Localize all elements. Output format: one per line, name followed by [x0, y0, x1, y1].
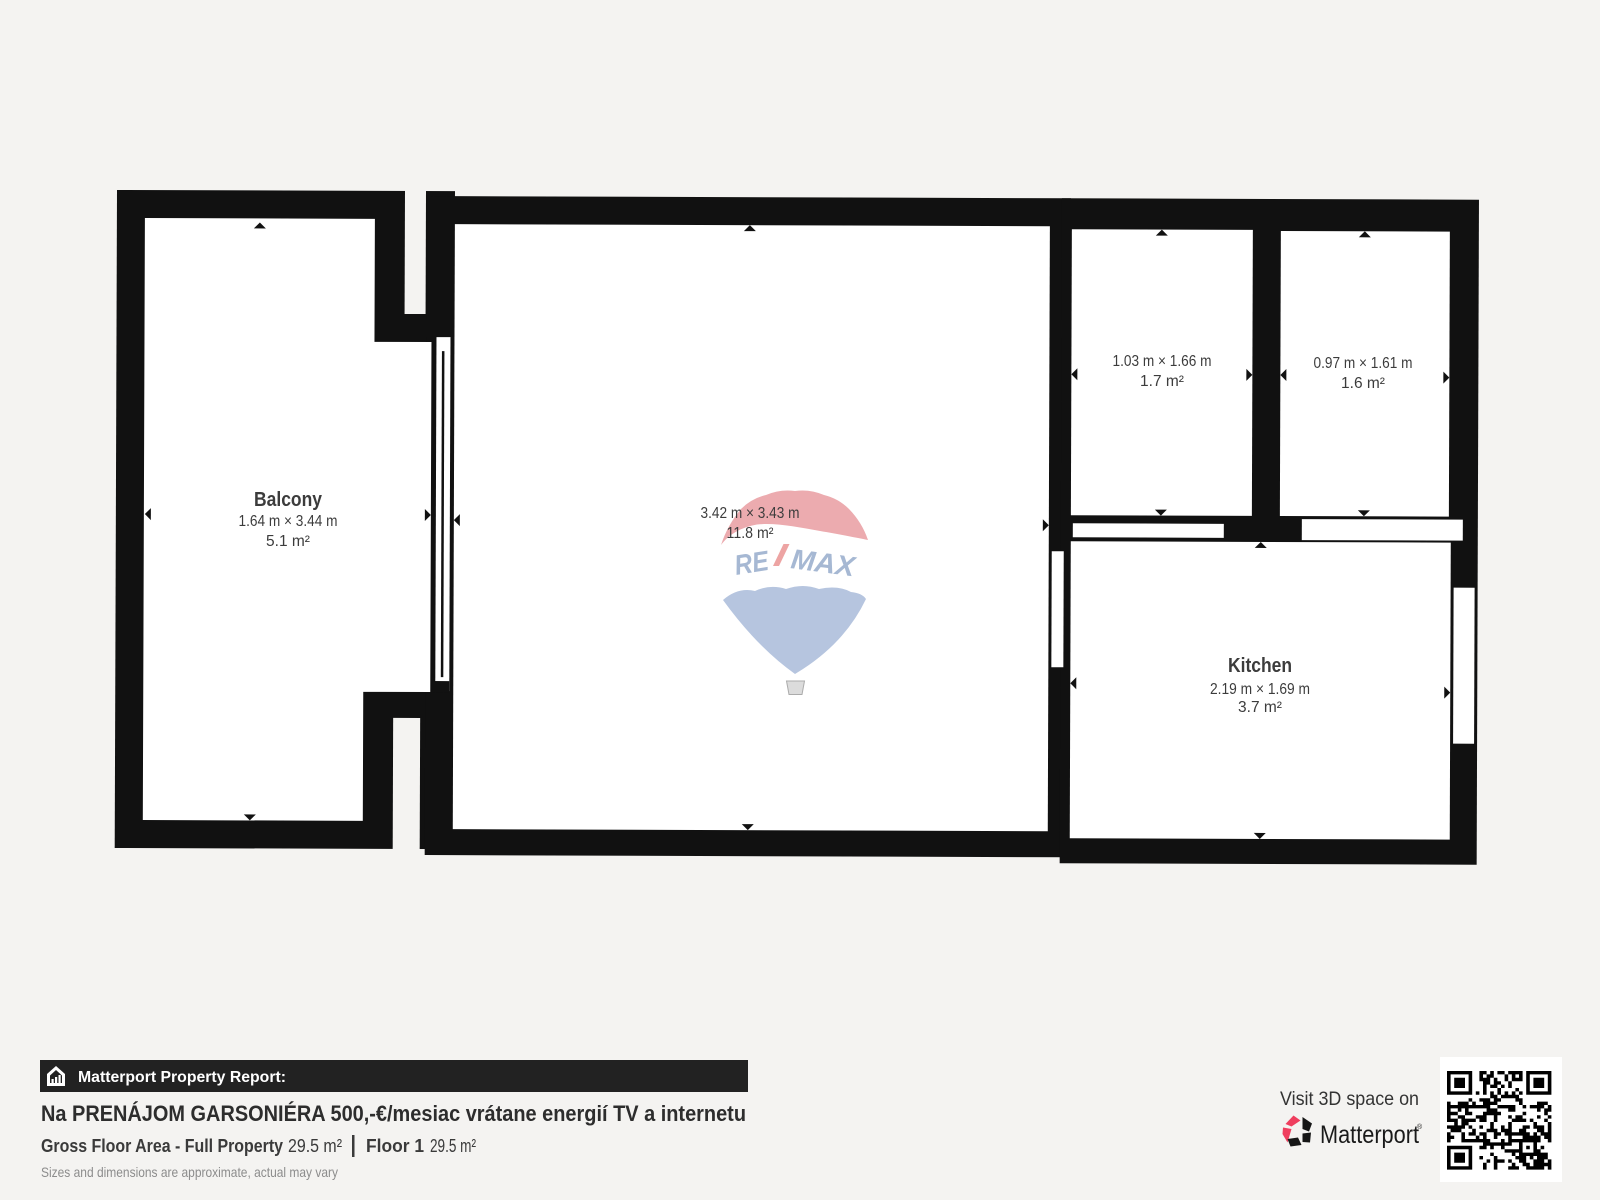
svg-text:RE: RE [732, 545, 772, 581]
svg-text:Kitchen: Kitchen [1228, 655, 1292, 677]
svg-text:Na PRENÁJOM GARSONIÉRA 500,-€/: Na PRENÁJOM GARSONIÉRA 500,-€/mesiac vrá… [41, 1101, 746, 1126]
svg-text:0.97 m × 1.61 m: 0.97 m × 1.61 m [1314, 355, 1413, 372]
svg-text:1.6 m²: 1.6 m² [1341, 375, 1385, 392]
svg-text:®: ® [1417, 1123, 1423, 1131]
svg-text:Floor 1: Floor 1 [366, 1135, 424, 1156]
svg-text:11.8 m²: 11.8 m² [727, 525, 774, 542]
svg-text:2.19 m × 1.69 m: 2.19 m × 1.69 m [1210, 681, 1310, 698]
svg-text:Balcony: Balcony [254, 489, 323, 511]
svg-text:Matterport: Matterport [1320, 1121, 1419, 1149]
svg-text:1.7 m²: 1.7 m² [1140, 373, 1184, 390]
svg-text:Gross Floor Area - Full Proper: Gross Floor Area - Full Property [41, 1135, 284, 1156]
svg-text:Matterport Property Report:: Matterport Property Report: [78, 1069, 286, 1086]
svg-text:1.64 m × 3.44 m: 1.64 m × 3.44 m [239, 513, 338, 530]
svg-text:5.1 m²: 5.1 m² [266, 533, 310, 550]
svg-text:3.42 m × 3.43 m: 3.42 m × 3.43 m [701, 505, 800, 522]
svg-text:29.5 m²: 29.5 m² [430, 1135, 476, 1156]
svg-text:29.5 m²: 29.5 m² [288, 1135, 342, 1156]
svg-text:1.03 m × 1.66 m: 1.03 m × 1.66 m [1113, 353, 1212, 370]
svg-text:Visit 3D space on: Visit 3D space on [1280, 1088, 1419, 1110]
svg-text:3.7 m²: 3.7 m² [1238, 699, 1282, 716]
svg-text:Sizes and dimensions are appro: Sizes and dimensions are approximate, ac… [41, 1164, 338, 1180]
